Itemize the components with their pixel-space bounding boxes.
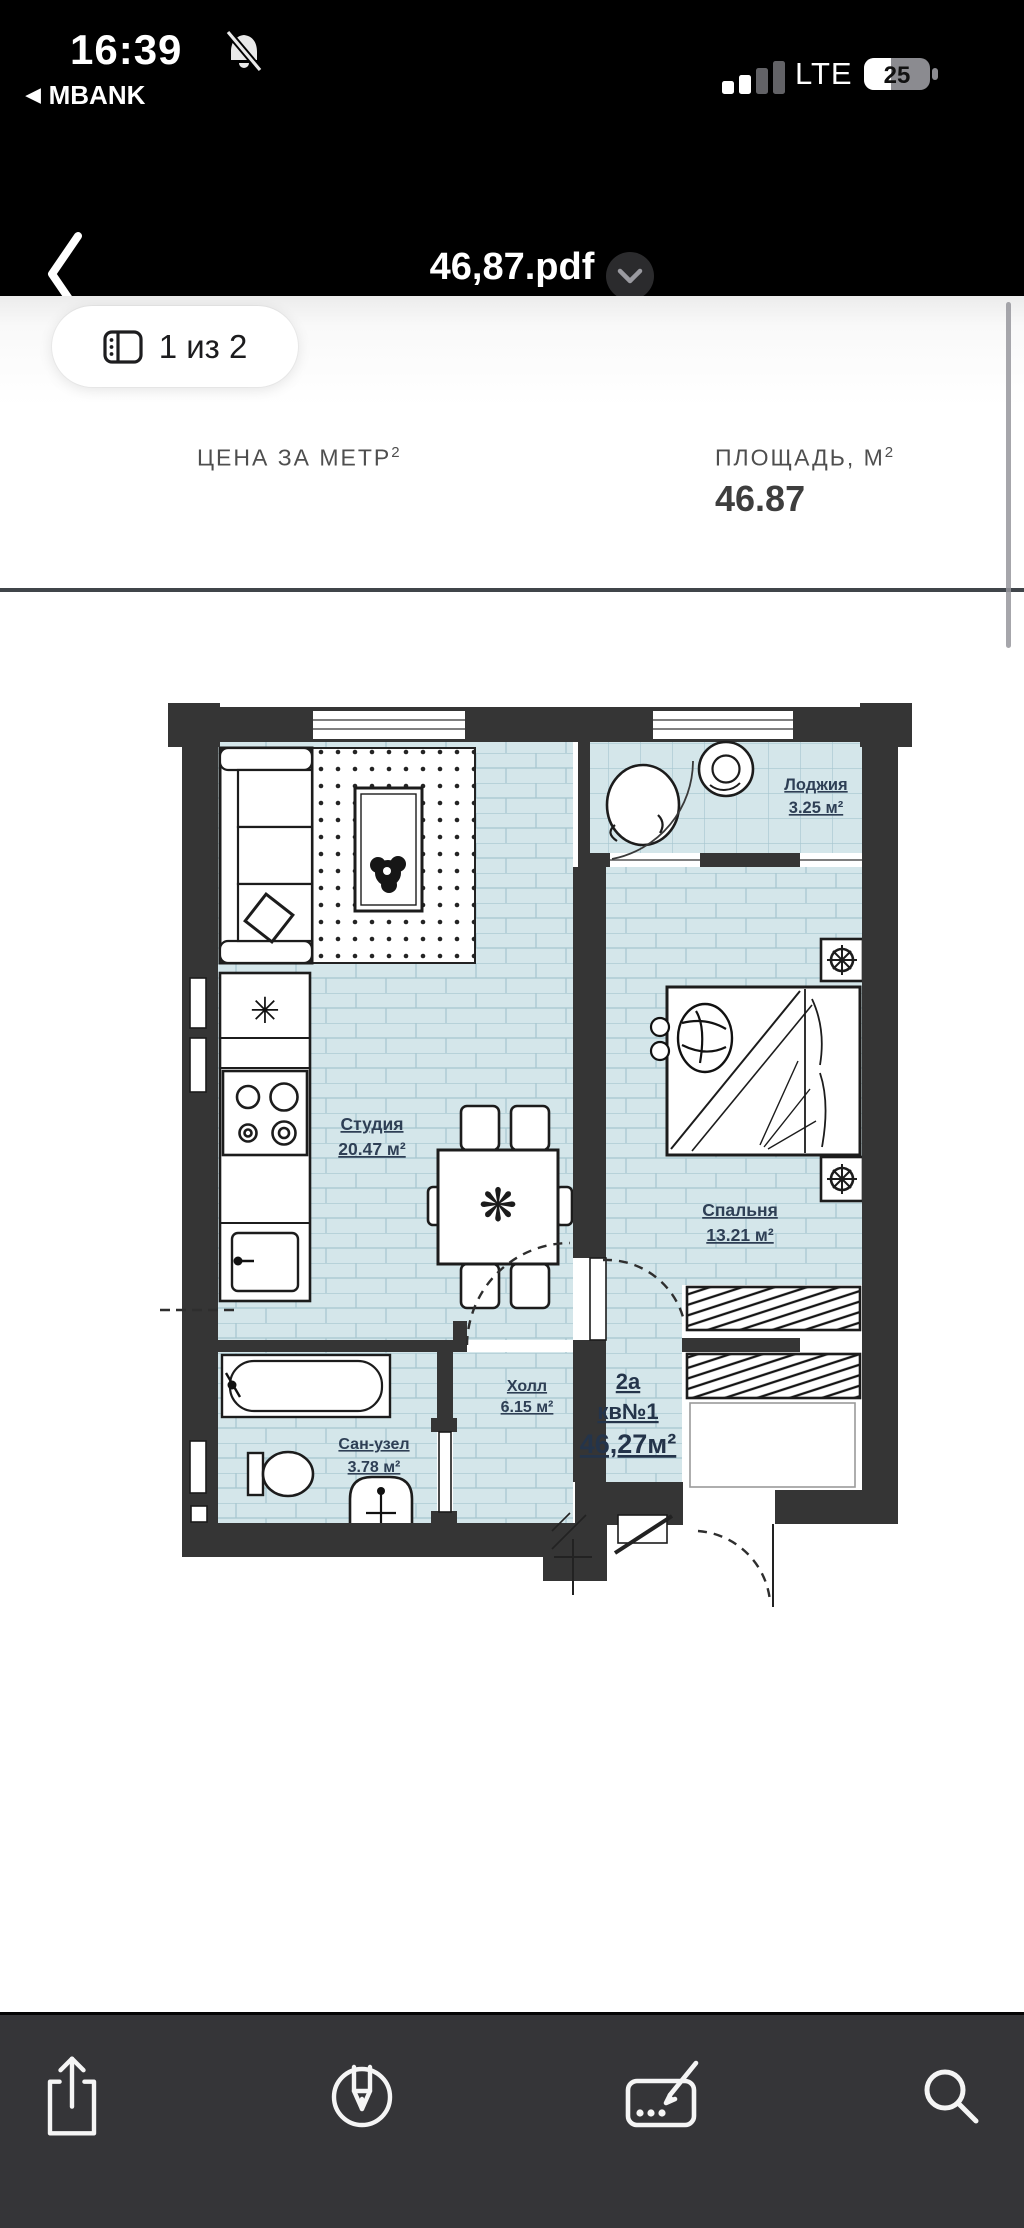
room-name: Холл xyxy=(507,1378,547,1395)
wardrobe xyxy=(682,1287,860,1487)
clock: 16:39 xyxy=(70,26,182,74)
room-name: Лоджия xyxy=(784,776,847,794)
room-name: Студия xyxy=(340,1114,403,1134)
apartment-area: 46,27м² xyxy=(580,1429,677,1459)
bathtub xyxy=(222,1355,390,1417)
bedroom-door-leaf xyxy=(590,1258,606,1340)
kitchen-sink xyxy=(232,1233,298,1291)
sofa xyxy=(220,748,312,963)
area-value: 46.87 xyxy=(715,478,805,520)
room-name: Сан-узел xyxy=(338,1436,409,1453)
search-icon xyxy=(916,2061,988,2133)
pdf-divider-line xyxy=(0,588,1024,592)
pdf-toolbar xyxy=(0,2012,1024,2228)
chevron-down-icon xyxy=(616,267,644,285)
room-area: 3.78 м² xyxy=(348,1459,401,1476)
kitchen-block: ✳ xyxy=(220,973,310,1301)
title-menu-button[interactable] xyxy=(606,252,654,300)
price-per-meter-label: ЦЕНА ЗА МЕТР2 xyxy=(197,444,402,472)
share-button[interactable] xyxy=(20,2045,124,2149)
battery-indicator: 25 xyxy=(864,56,944,97)
markup-icon xyxy=(323,2058,401,2136)
stove-burners xyxy=(223,1071,307,1155)
toilet xyxy=(248,1452,313,1496)
room-area: 13.21 м² xyxy=(706,1225,774,1245)
room-name: Спальня xyxy=(702,1200,778,1220)
floor-plan: ✳ ❋ xyxy=(160,693,920,1633)
area-label: ПЛОЩАДЬ, М2 xyxy=(715,444,895,472)
pdf-content-area: 1 из 2 ЦЕНА ЗА МЕТР2 ПЛОЩАДЬ, М2 46.87 xyxy=(0,296,1024,2012)
share-icon xyxy=(37,2053,107,2141)
previous-app-name: MBANK xyxy=(49,80,146,111)
room-area: 3.25 м² xyxy=(789,799,844,817)
bed xyxy=(651,987,860,1155)
table-flower: ❋ xyxy=(479,1179,518,1231)
pedestal-sink xyxy=(350,1477,412,1525)
markup-button[interactable] xyxy=(310,2045,414,2149)
back-to-previous-app[interactable]: ◀ MBANK xyxy=(26,80,145,111)
search-button[interactable] xyxy=(900,2045,1004,2149)
battery-percent-value: 25 xyxy=(884,62,911,89)
apartment-type: 2а xyxy=(616,1369,641,1394)
signal-strength-icon xyxy=(722,58,792,99)
bathroom-door-leaf xyxy=(439,1432,451,1512)
room-area: 6.15 м² xyxy=(501,1399,554,1416)
page-indicator-label: 1 из 2 xyxy=(159,328,248,366)
status-and-nav-bar: 16:39 ◀ MBANK LTE 25 46,87.p xyxy=(0,0,1024,296)
page-indicator-pill[interactable]: 1 из 2 xyxy=(52,306,298,387)
fridge-symbol: ✳ xyxy=(250,990,280,1031)
document-title: 46,87.pdf xyxy=(0,246,1024,289)
apartment-number: кв№1 xyxy=(597,1399,658,1424)
rug-and-tv-stand xyxy=(312,748,475,963)
thumbnails-sidebar-icon xyxy=(103,330,143,364)
signature-icon xyxy=(614,2055,710,2139)
signature-button[interactable] xyxy=(610,2045,714,2149)
scrollbar[interactable] xyxy=(1006,302,1011,648)
room-area: 20.47 м² xyxy=(338,1139,406,1159)
notifications-muted-icon xyxy=(224,30,264,79)
network-type-label: LTE xyxy=(795,56,853,92)
back-triangle-icon: ◀ xyxy=(26,84,41,107)
